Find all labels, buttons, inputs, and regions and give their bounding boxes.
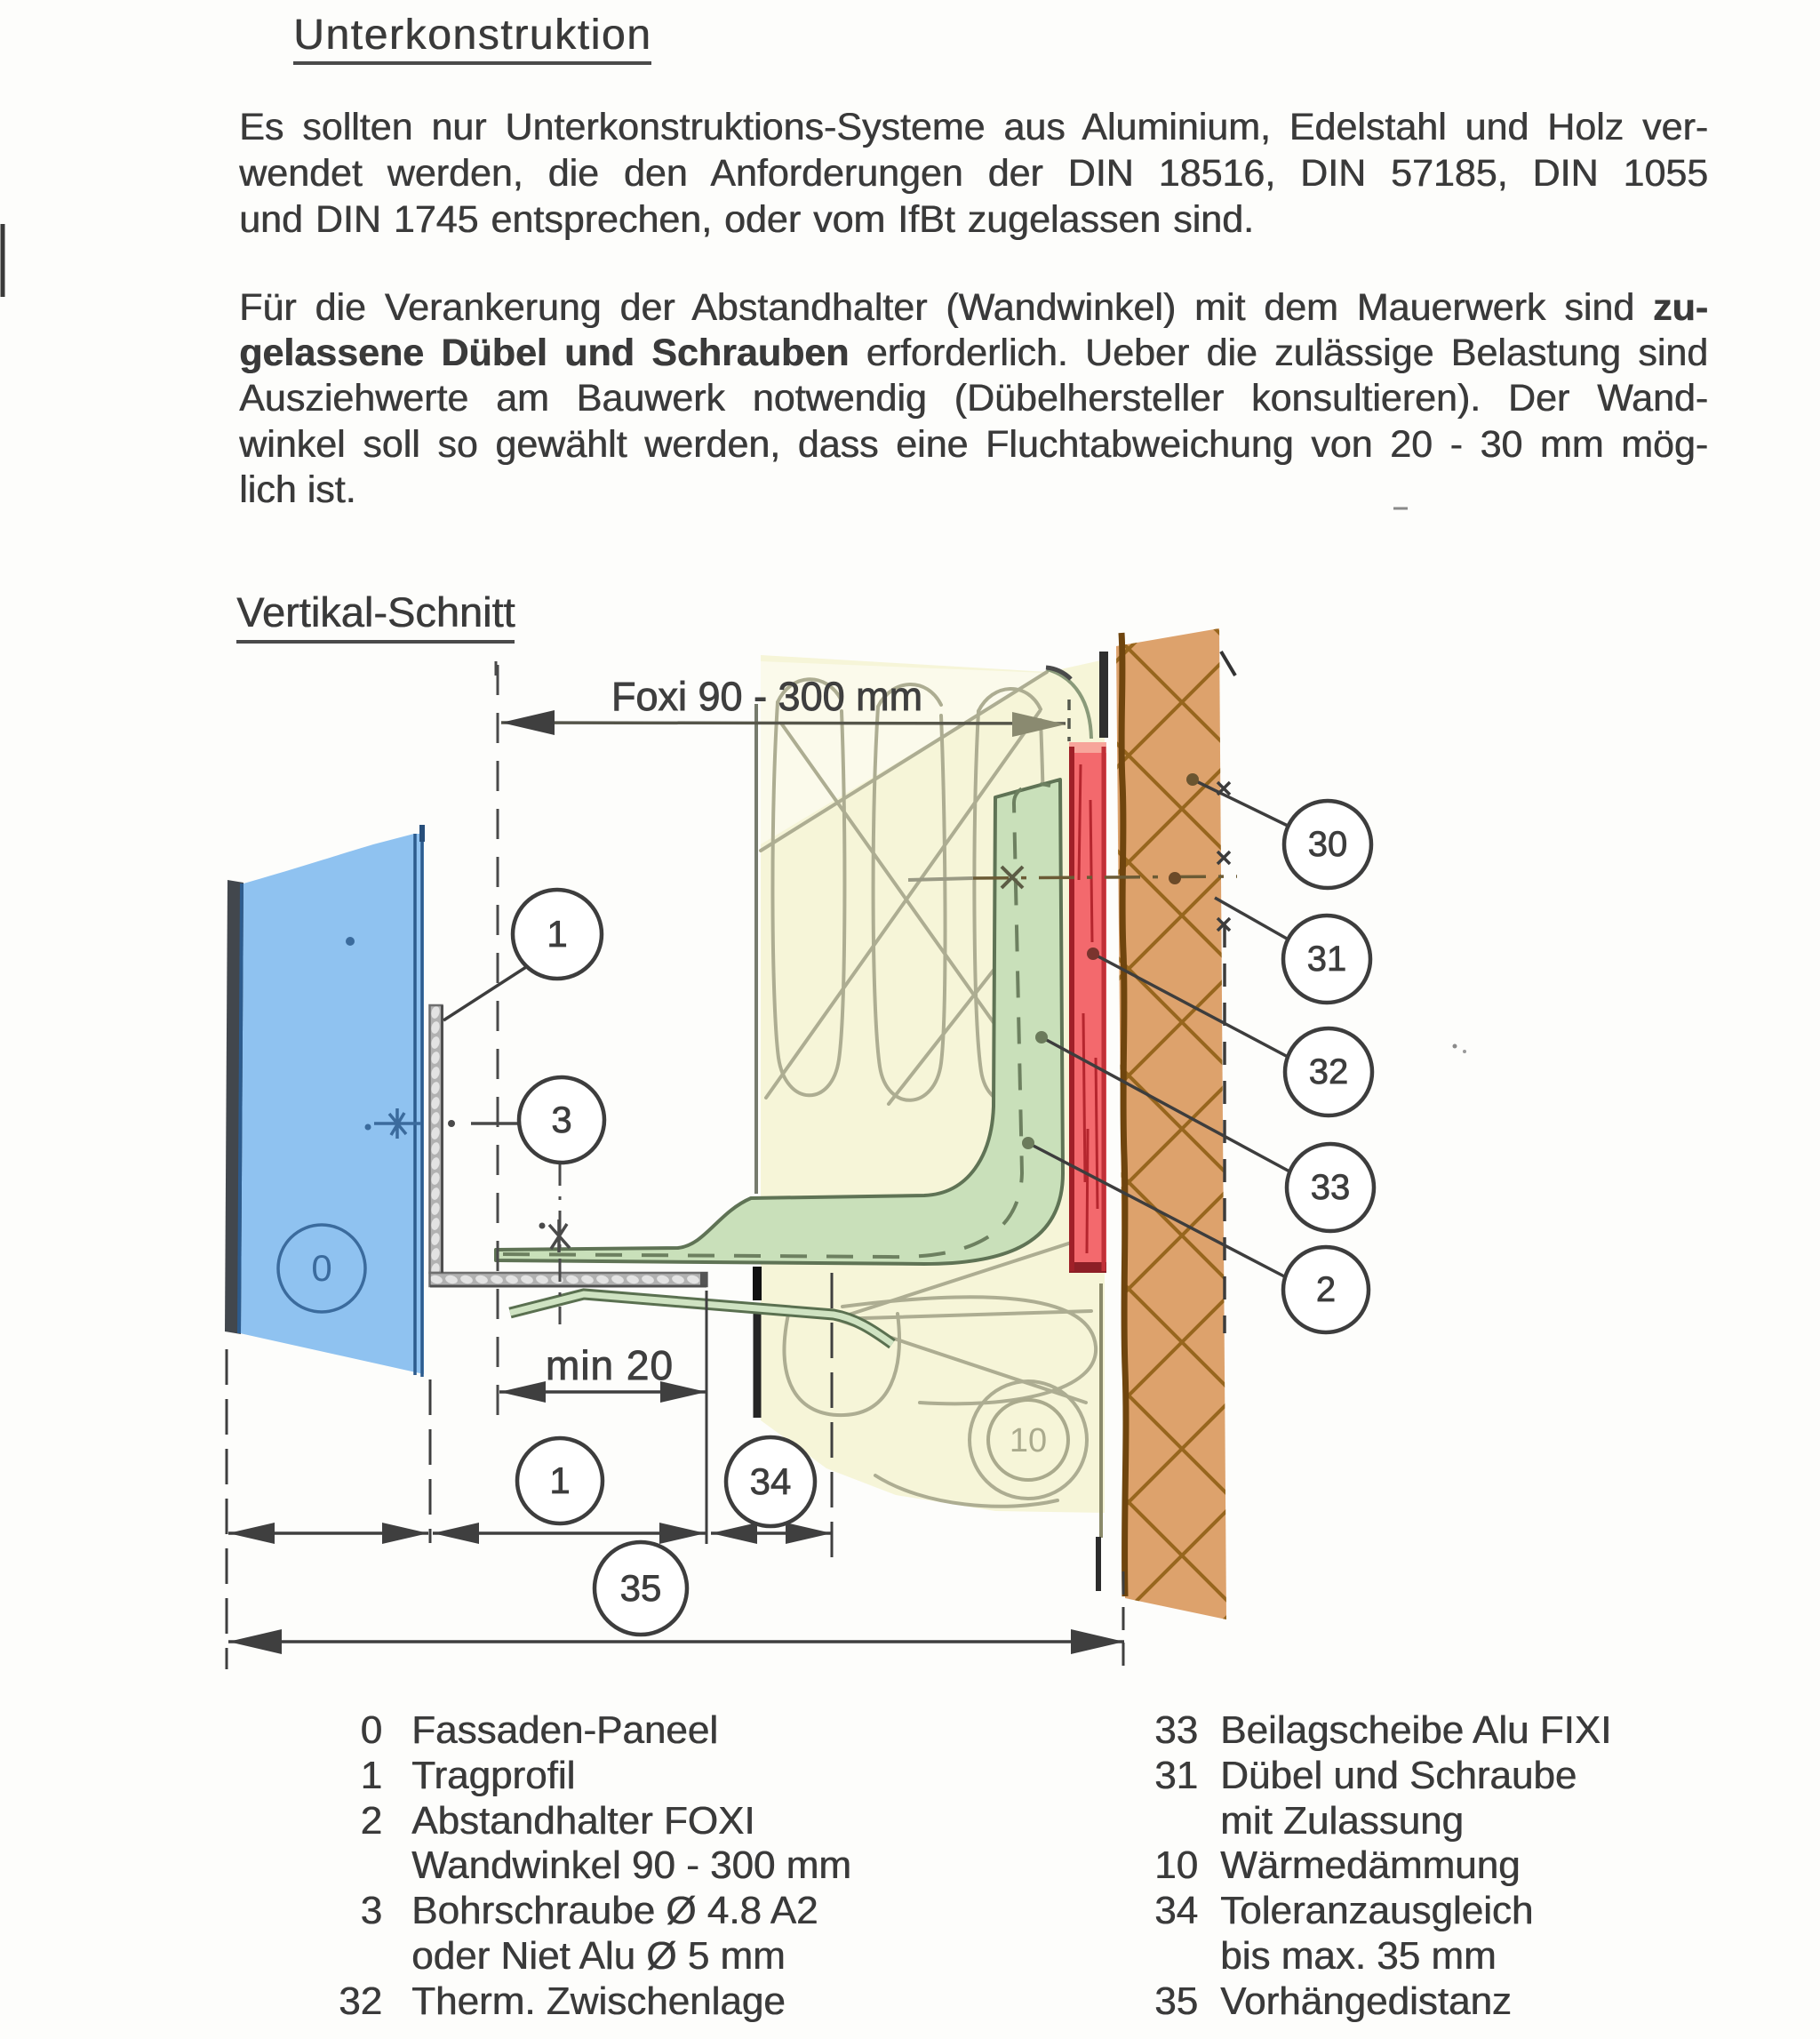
svg-text:min 20: min 20 bbox=[546, 1342, 674, 1388]
svg-text:32: 32 bbox=[1309, 1052, 1349, 1091]
svg-text:0: 0 bbox=[311, 1247, 331, 1289]
svg-text:34: 34 bbox=[750, 1460, 792, 1502]
svg-text:1: 1 bbox=[547, 913, 567, 955]
svg-text:3: 3 bbox=[551, 1099, 571, 1140]
svg-text:33: 33 bbox=[1311, 1168, 1351, 1207]
svg-text:30: 30 bbox=[1308, 825, 1348, 864]
svg-text:35: 35 bbox=[620, 1567, 662, 1609]
svg-text:2: 2 bbox=[1316, 1270, 1336, 1309]
svg-text:Foxi 90 - 300 mm: Foxi 90 - 300 mm bbox=[611, 674, 922, 719]
svg-text:1: 1 bbox=[549, 1459, 570, 1501]
svg-text:31: 31 bbox=[1307, 940, 1347, 979]
svg-text:10: 10 bbox=[1010, 1422, 1047, 1459]
